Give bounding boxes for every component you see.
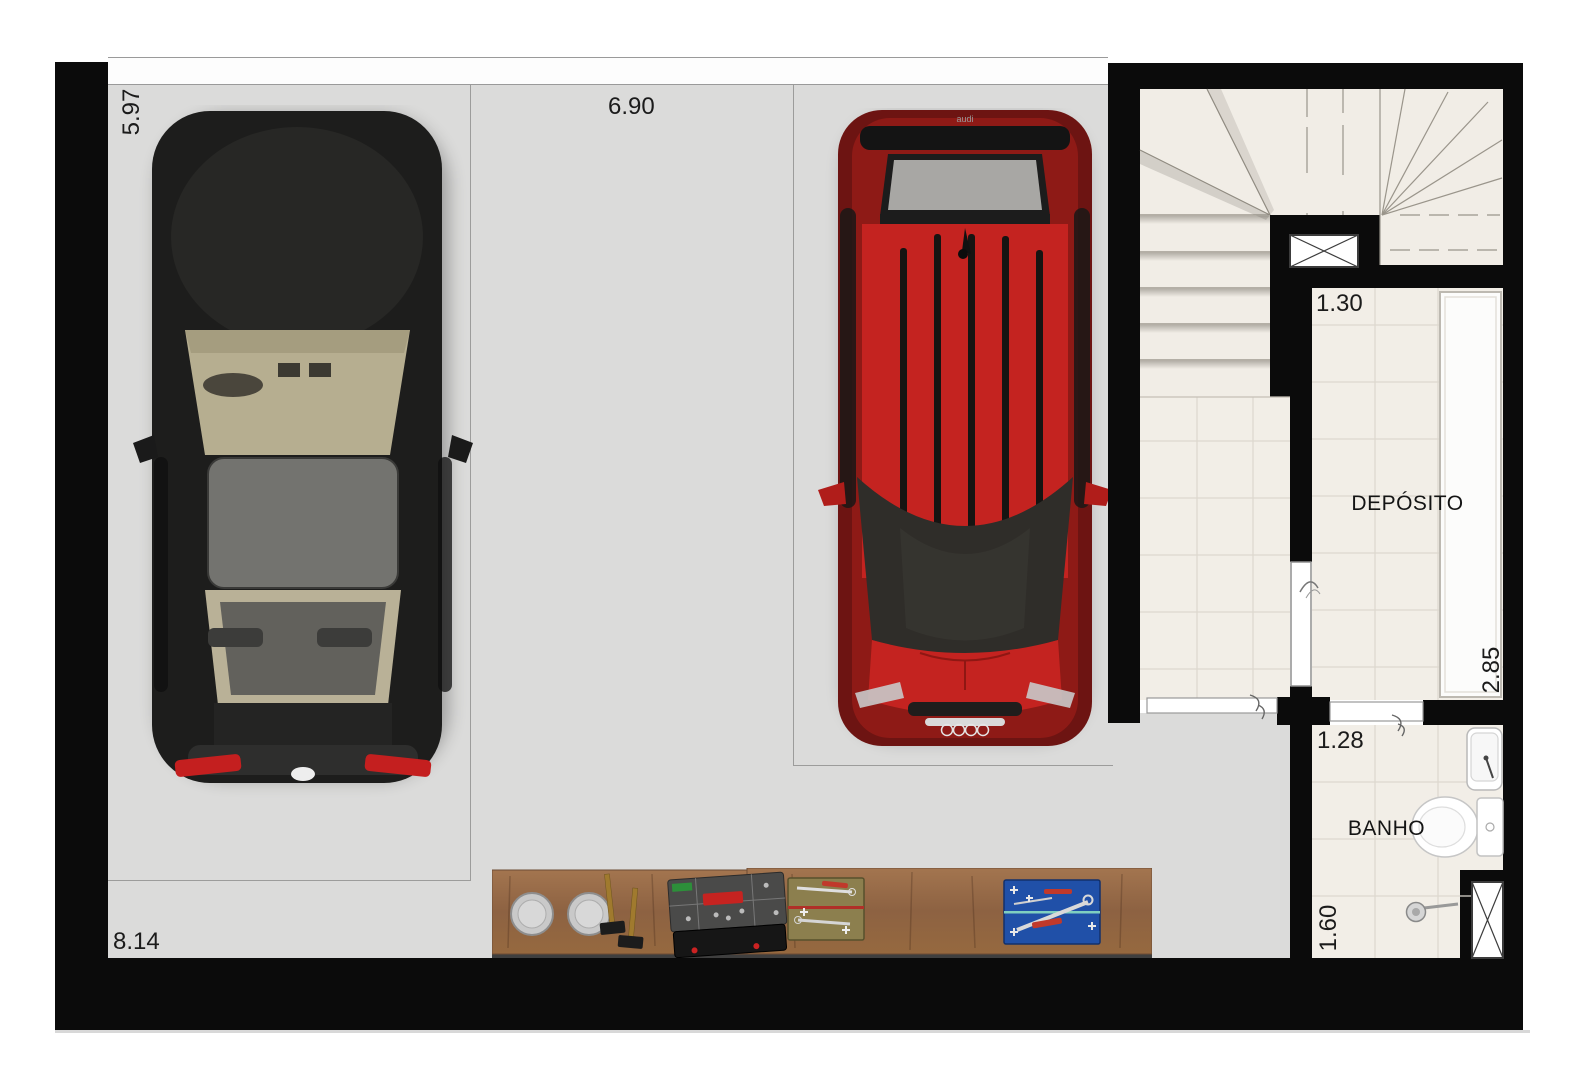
parking-line-horizontal-1 xyxy=(108,880,471,881)
toolbox-icon xyxy=(668,872,789,958)
sink-icon xyxy=(1467,728,1502,790)
banho-label: BANHO xyxy=(1329,817,1444,841)
red-car: audi xyxy=(800,108,1130,758)
wall-left xyxy=(55,62,108,1030)
stair-fan xyxy=(1382,89,1502,250)
tool-tray-blue xyxy=(1004,880,1100,944)
workbench xyxy=(492,868,1152,960)
garage-door xyxy=(108,57,1108,85)
shaft-x-symbol xyxy=(1290,235,1358,267)
landing-threshold xyxy=(1147,695,1277,719)
shaft-x-banho xyxy=(1472,882,1503,958)
black-car xyxy=(128,105,478,800)
dim-deposito-width: 1.30 xyxy=(1316,290,1363,318)
dim-deposito-depth: 2.85 xyxy=(1478,625,1502,715)
dim-garage-top: 6.90 xyxy=(608,93,655,121)
dim-garage-bottom: 8.14 xyxy=(113,928,160,956)
parking-line-vertical-2 xyxy=(793,85,794,765)
tool-tray-olive xyxy=(788,878,864,940)
stair-winders xyxy=(1140,89,1274,224)
landing-tile-grid xyxy=(1140,397,1290,700)
stair-lower-flight xyxy=(1140,252,1290,397)
deposito-label: DEPÓSITO xyxy=(1312,492,1503,516)
parking-line-horizontal-2 xyxy=(793,765,1113,766)
red-car-brand-text: audi xyxy=(956,114,973,124)
dim-banho-depth: 1.60 xyxy=(1315,883,1339,973)
floor-plan: audi xyxy=(0,0,1572,1080)
dim-garage-left: 5.97 xyxy=(118,67,142,157)
shower-icon xyxy=(1407,903,1459,922)
dim-banho-width: 1.28 xyxy=(1317,727,1364,755)
